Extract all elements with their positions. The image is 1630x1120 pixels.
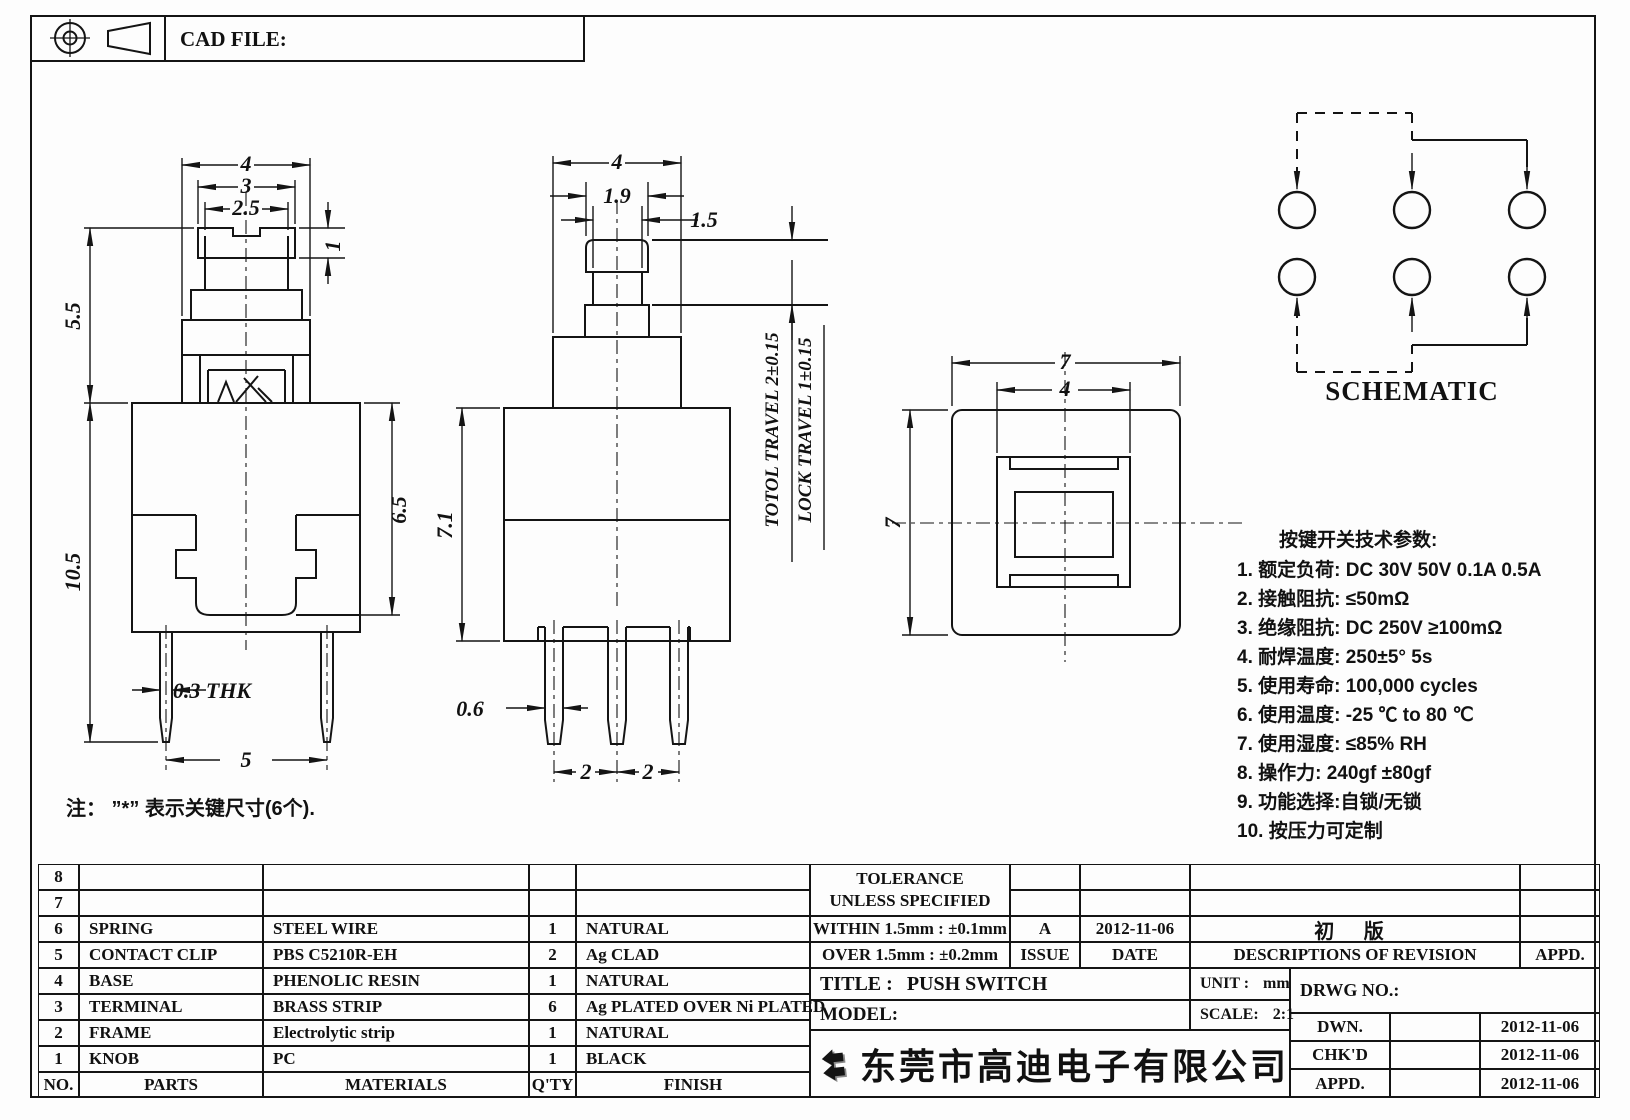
- tech-param-item: 2. 接触阻抗: ≤50mΩ: [1237, 585, 1630, 614]
- parts-finish-cell: NATURAL: [576, 1020, 810, 1046]
- parts-material-cell: PHENOLIC RESIN: [263, 968, 529, 994]
- empty-cell: [1010, 864, 1080, 890]
- parts-qty-cell: 6: [529, 994, 576, 1020]
- tech-param-item: 4. 耐焊温度: 250±5° 5s: [1237, 643, 1630, 672]
- issue-value: A: [1010, 916, 1080, 942]
- schematic-geometry: [1279, 113, 1545, 372]
- parts-name-cell: BASE: [79, 968, 263, 994]
- parts-name-cell: TERMINAL: [79, 994, 263, 1020]
- dim-side-7_1: 7.1: [432, 511, 457, 539]
- tech-param-item: 6. 使用温度: -25 ℃ to 80 ℃: [1237, 701, 1630, 730]
- empty-cell: [1520, 916, 1600, 942]
- tech-param-item: 1. 额定负荷: DC 30V 50V 0.1A 0.5A: [1237, 556, 1630, 585]
- drwg-no-cell: DRWG NO.:: [1290, 968, 1600, 1013]
- chkd-label: CHK'D: [1290, 1041, 1390, 1069]
- parts-material-cell: [263, 864, 529, 890]
- empty-cell: [1010, 890, 1080, 916]
- parts-no-cell: 3: [38, 994, 79, 1020]
- header-bar: CAD FILE:: [30, 15, 586, 63]
- dim-front-5_5: 5.5: [60, 302, 85, 330]
- parts-header-no: NO.: [38, 1072, 79, 1098]
- scale-label: SCALE:: [1200, 1006, 1259, 1024]
- parts-finish-cell: NATURAL: [576, 916, 810, 942]
- empty-cell: [1520, 890, 1600, 916]
- scale-cell: SCALE: 2:1: [1190, 1000, 1290, 1030]
- parts-header-qty: Q'TY: [529, 1072, 576, 1098]
- dim-side-1_9: 1.9: [603, 183, 631, 208]
- issue-date-value: 2012-11-06: [1080, 916, 1190, 942]
- unit-value: mm: [1263, 975, 1290, 993]
- parts-no-cell: 8: [38, 864, 79, 890]
- company-banner: 东莞市高迪电子有限公司: [810, 1030, 1290, 1098]
- dim-front-1: 1: [320, 241, 345, 252]
- tolerance-subtitle: UNLESS SPECIFIED: [829, 891, 990, 911]
- title-label: TITLE :: [820, 973, 893, 996]
- dwn-label: DWN.: [1290, 1013, 1390, 1041]
- tech-param-item: 7. 使用湿度: ≤85% RH: [1237, 730, 1630, 759]
- parts-name-cell: [79, 890, 263, 916]
- dim-side-4: 4: [611, 149, 623, 174]
- empty-cell: [1190, 890, 1520, 916]
- tech-param-item: 9. 功能选择:自锁/无锁: [1237, 788, 1630, 817]
- parts-qty-cell: 1: [529, 916, 576, 942]
- parts-no-cell: 2: [38, 1020, 79, 1046]
- tolerance-within: WITHIN 1.5mm : ±0.1mm: [810, 916, 1010, 942]
- unit-label: UNIT :: [1200, 975, 1249, 993]
- parts-header-finish: FINISH: [576, 1072, 810, 1098]
- parts-no-cell: 7: [38, 890, 79, 916]
- chkd-date: 2012-11-06: [1480, 1041, 1600, 1069]
- top-view-drawing: 7 4 7: [850, 330, 1250, 670]
- schematic-drawing: SCHEMATIC: [1230, 95, 1550, 425]
- parts-material-cell: PC: [263, 1046, 529, 1072]
- chkd-name-cell: [1390, 1041, 1480, 1069]
- tolerance-title: TOLERANCE: [856, 869, 963, 889]
- revision-header: DESCRIPTIONS OF REVISION: [1190, 942, 1520, 968]
- dim-front-10_5: 10.5: [60, 553, 85, 592]
- dim-top-7w: 7: [1060, 349, 1072, 374]
- lock-travel-label: LOCK TRAVEL 1±0.15: [795, 337, 816, 524]
- appd-date: 2012-11-06: [1480, 1069, 1600, 1098]
- dwn-name-cell: [1390, 1013, 1480, 1041]
- revision-description: 初 版: [1190, 916, 1520, 942]
- parts-no-cell: 5: [38, 942, 79, 968]
- parts-name-cell: KNOB: [79, 1046, 263, 1072]
- revision-appd-header: APPD.: [1520, 942, 1600, 968]
- parts-material-cell: Electrolytic strip: [263, 1020, 529, 1046]
- side-view-dimensions: 4 1.9 1.5 7.1 0.6 2 2 TOTOL TRAVEL 2±0.1…: [432, 149, 824, 784]
- parts-no-cell: 6: [38, 916, 79, 942]
- tolerance-box: TOLERANCE UNLESS SPECIFIED: [810, 864, 1010, 916]
- tech-param-item: 8. 操作力: 240gf ±80gf: [1237, 759, 1630, 788]
- parts-name-cell: FRAME: [79, 1020, 263, 1046]
- third-angle-projection-icon: [50, 19, 150, 57]
- dim-front-5: 5: [241, 747, 252, 772]
- appd-name-cell: [1390, 1069, 1480, 1098]
- tech-params-block: 按键开关技术参数: 1. 额定负荷: DC 30V 50V 0.1A 0.5A …: [1237, 526, 1630, 846]
- parts-name-cell: CONTACT CLIP: [79, 942, 263, 968]
- tech-param-item: 10. 按压力可定制: [1237, 817, 1630, 846]
- parts-qty-cell: 2: [529, 942, 576, 968]
- empty-cell: [1080, 890, 1190, 916]
- parts-qty-cell: 1: [529, 1020, 576, 1046]
- dwn-date: 2012-11-06: [1480, 1013, 1600, 1041]
- key-dimension-note: 注： ”*” 表示关键尺寸(6个).: [66, 792, 315, 821]
- parts-finish-cell: Ag PLATED OVER Ni PLATED: [576, 994, 810, 1020]
- issue-header: ISSUE: [1010, 942, 1080, 968]
- parts-qty-cell: 1: [529, 968, 576, 994]
- unit-cell: UNIT : mm: [1190, 968, 1290, 1000]
- drawing-sheet: CAD FILE:: [0, 0, 1630, 1120]
- total-travel-label: TOTOL TRAVEL 2±0.15: [762, 332, 783, 528]
- dim-side-1_5: 1.5: [690, 207, 718, 232]
- title-value: PUSH SWITCH: [907, 973, 1048, 996]
- header-boxes: [31, 16, 584, 61]
- parts-material-cell: PBS C5210R-EH: [263, 942, 529, 968]
- schematic-label: SCHEMATIC: [1325, 376, 1499, 406]
- parts-name-cell: [79, 864, 263, 890]
- company-logo: [811, 1038, 848, 1090]
- empty-cell: [1080, 864, 1190, 890]
- front-view-drawing: 4 3 2.5 1 5.5 10.5 6.5 0.3 THK 5: [60, 130, 420, 790]
- dim-top-7h: 7: [880, 517, 905, 529]
- parts-finish-cell: [576, 890, 810, 916]
- tolerance-over: OVER 1.5mm : ±0.2mm: [810, 942, 1010, 968]
- company-name: 东莞市高迪电子有限公司: [860, 1038, 1289, 1090]
- dim-front-thk: 0.3 THK: [173, 678, 253, 703]
- parts-finish-cell: NATURAL: [576, 968, 810, 994]
- side-view-drawing: 4 1.9 1.5 7.1 0.6 2 2 TOTOL TRAVEL 2±0.1…: [430, 130, 840, 790]
- parts-no-cell: 1: [38, 1046, 79, 1072]
- parts-material-cell: BRASS STRIP: [263, 994, 529, 1020]
- dim-top-4: 4: [1059, 376, 1071, 401]
- parts-material-cell: [263, 890, 529, 916]
- parts-finish-cell: Ag CLAD: [576, 942, 810, 968]
- appd-label: APPD.: [1290, 1069, 1390, 1098]
- empty-cell: [1520, 864, 1600, 890]
- parts-header-materials: MATERIALS: [263, 1072, 529, 1098]
- parts-qty-cell: 1: [529, 1046, 576, 1072]
- parts-finish-cell: [576, 864, 810, 890]
- dim-front-6_5: 6.5: [386, 496, 411, 524]
- front-view-dimensions: 4 3 2.5 1 5.5 10.5 6.5 0.3 THK 5: [60, 151, 411, 772]
- tech-param-item: 5. 使用寿命: 100,000 cycles: [1237, 672, 1630, 701]
- dim-front-2_5: 2.5: [231, 195, 260, 220]
- empty-cell: [1190, 864, 1520, 890]
- parts-no-cell: 4: [38, 968, 79, 994]
- tech-param-item: 3. 绝缘阻抗: DC 250V ≥100mΩ: [1237, 614, 1630, 643]
- drawing-title: TITLE : PUSH SWITCH: [810, 968, 1190, 1000]
- dim-side-2a: 2: [580, 759, 592, 784]
- dim-side-2b: 2: [642, 759, 654, 784]
- parts-qty-cell: [529, 890, 576, 916]
- parts-qty-cell: [529, 864, 576, 890]
- dim-side-0_6: 0.6: [456, 696, 484, 721]
- parts-material-cell: STEEL WIRE: [263, 916, 529, 942]
- model-cell: MODEL:: [810, 1000, 1190, 1030]
- parts-header-parts: PARTS: [79, 1072, 263, 1098]
- parts-finish-cell: BLACK: [576, 1046, 810, 1072]
- tech-params-title: 按键开关技术参数:: [1237, 526, 1630, 556]
- date-header: DATE: [1080, 942, 1190, 968]
- parts-name-cell: SPRING: [79, 916, 263, 942]
- cad-file-label: CAD FILE:: [180, 27, 287, 51]
